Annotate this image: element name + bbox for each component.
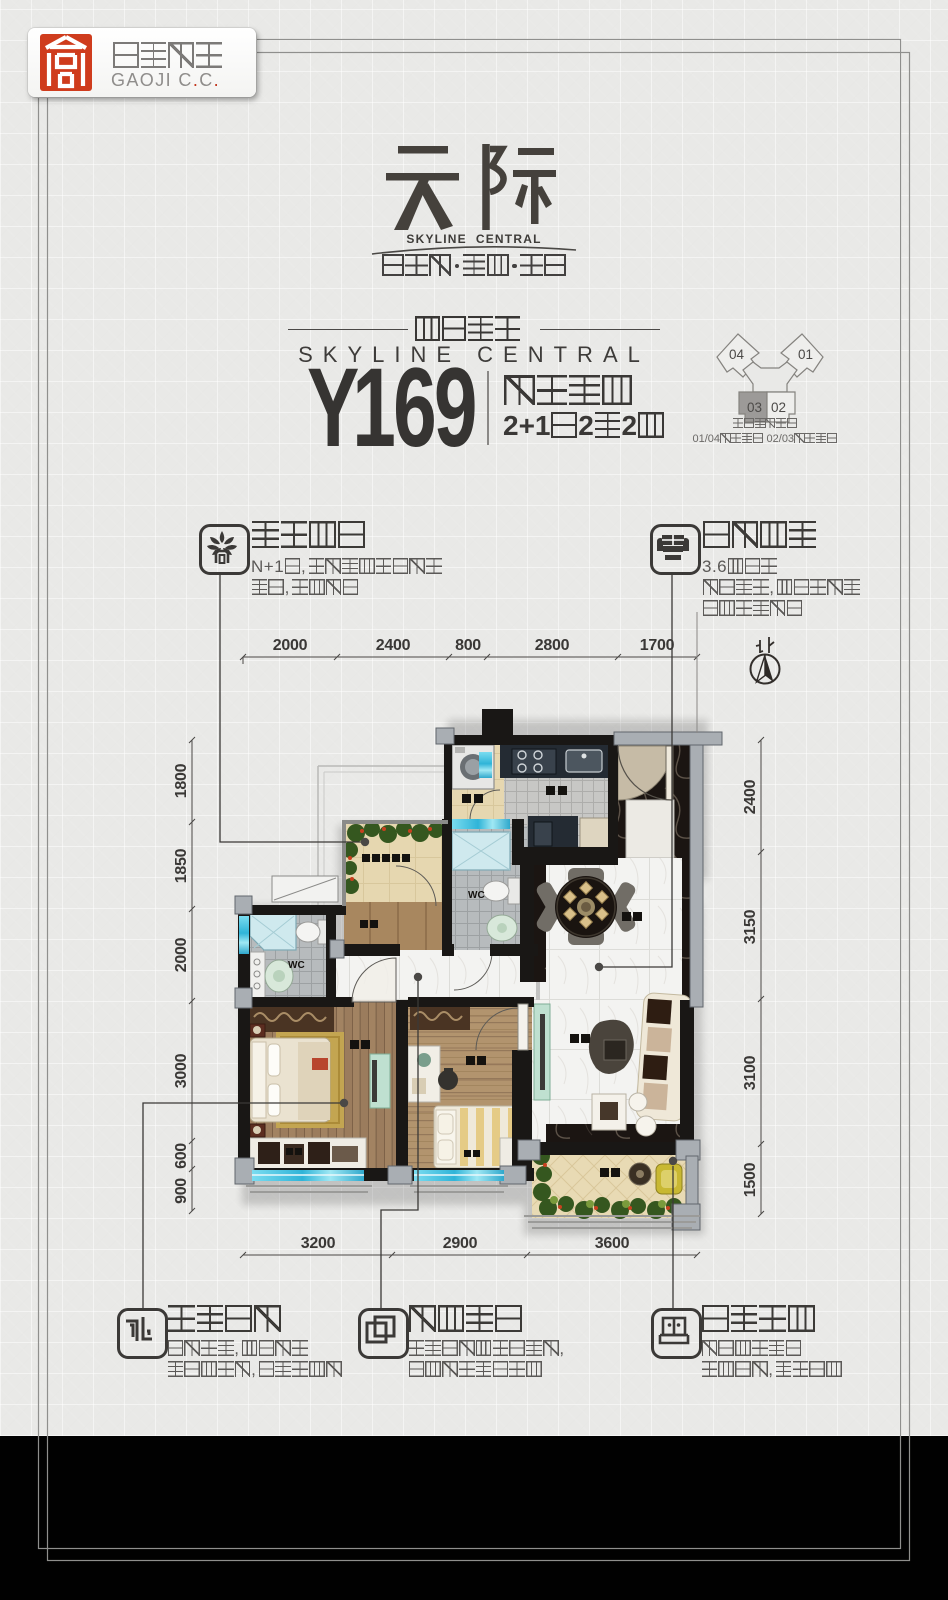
svg-text:3150: 3150 [742, 909, 759, 944]
svg-text:2400: 2400 [742, 779, 759, 814]
svg-text:3000: 3000 [173, 1053, 190, 1088]
svg-text:800: 800 [455, 637, 481, 654]
svg-text:3100: 3100 [742, 1055, 759, 1090]
svg-text:2400: 2400 [376, 637, 411, 654]
svg-text:600: 600 [173, 1143, 190, 1169]
svg-text:2800: 2800 [535, 637, 570, 654]
svg-text:1850: 1850 [173, 848, 190, 883]
svg-text:WC: WC [288, 960, 305, 971]
svg-text:2900: 2900 [443, 1235, 478, 1252]
svg-text:1800: 1800 [173, 763, 190, 798]
svg-text:3600: 3600 [595, 1235, 630, 1252]
svg-text:3200: 3200 [301, 1235, 336, 1252]
svg-text:900: 900 [173, 1178, 190, 1204]
svg-text:1700: 1700 [640, 637, 675, 654]
svg-text:2000: 2000 [273, 637, 308, 654]
svg-text:WC: WC [468, 890, 485, 901]
svg-text:2000: 2000 [173, 937, 190, 972]
svg-text:1500: 1500 [742, 1162, 759, 1197]
